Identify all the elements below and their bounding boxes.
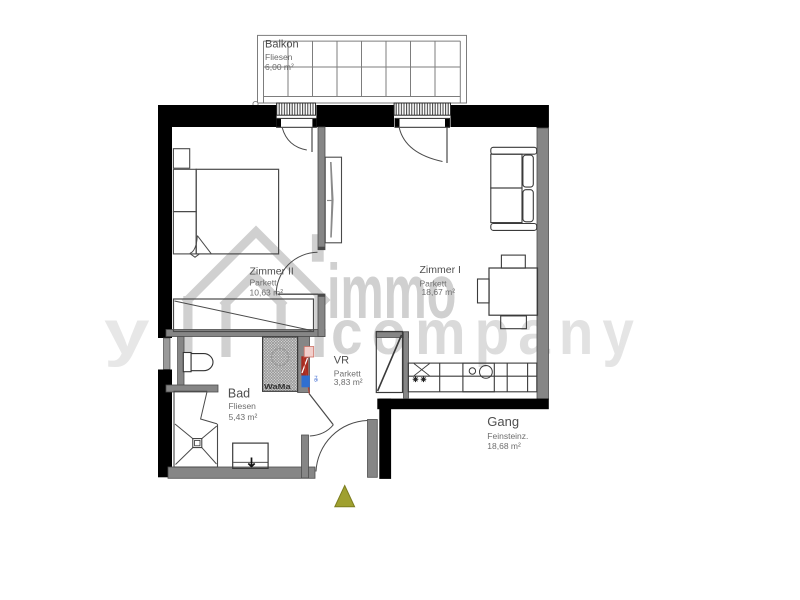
svg-text:18,67 m²: 18,67 m² (422, 287, 456, 297)
svg-text:3,83 m²: 3,83 m² (334, 377, 363, 387)
svg-text:Zimmer II: Zimmer II (250, 265, 294, 277)
svg-text:Gang: Gang (487, 414, 519, 429)
svg-text:Feinsteinz.: Feinsteinz. (487, 431, 528, 441)
svg-text:WaMa: WaMa (264, 382, 291, 391)
svg-text:y: y (104, 298, 150, 368)
svg-text:HB: HB (314, 376, 319, 382)
svg-text:18,68 m²: 18,68 m² (487, 441, 521, 451)
svg-text:10,63 m²: 10,63 m² (250, 288, 284, 298)
svg-text:5,43 m²: 5,43 m² (229, 412, 258, 422)
svg-text:Balkon: Balkon (265, 39, 299, 51)
svg-text:6,00 m²: 6,00 m² (265, 62, 294, 72)
svg-text:Parkett: Parkett (250, 278, 278, 288)
svg-text:Zimmer I: Zimmer I (420, 264, 461, 276)
svg-text:Fliesen: Fliesen (229, 401, 257, 411)
svg-text:Fliesen: Fliesen (265, 52, 293, 62)
svg-text:VR: VR (334, 355, 349, 367)
svg-text:Bad: Bad (228, 387, 250, 401)
